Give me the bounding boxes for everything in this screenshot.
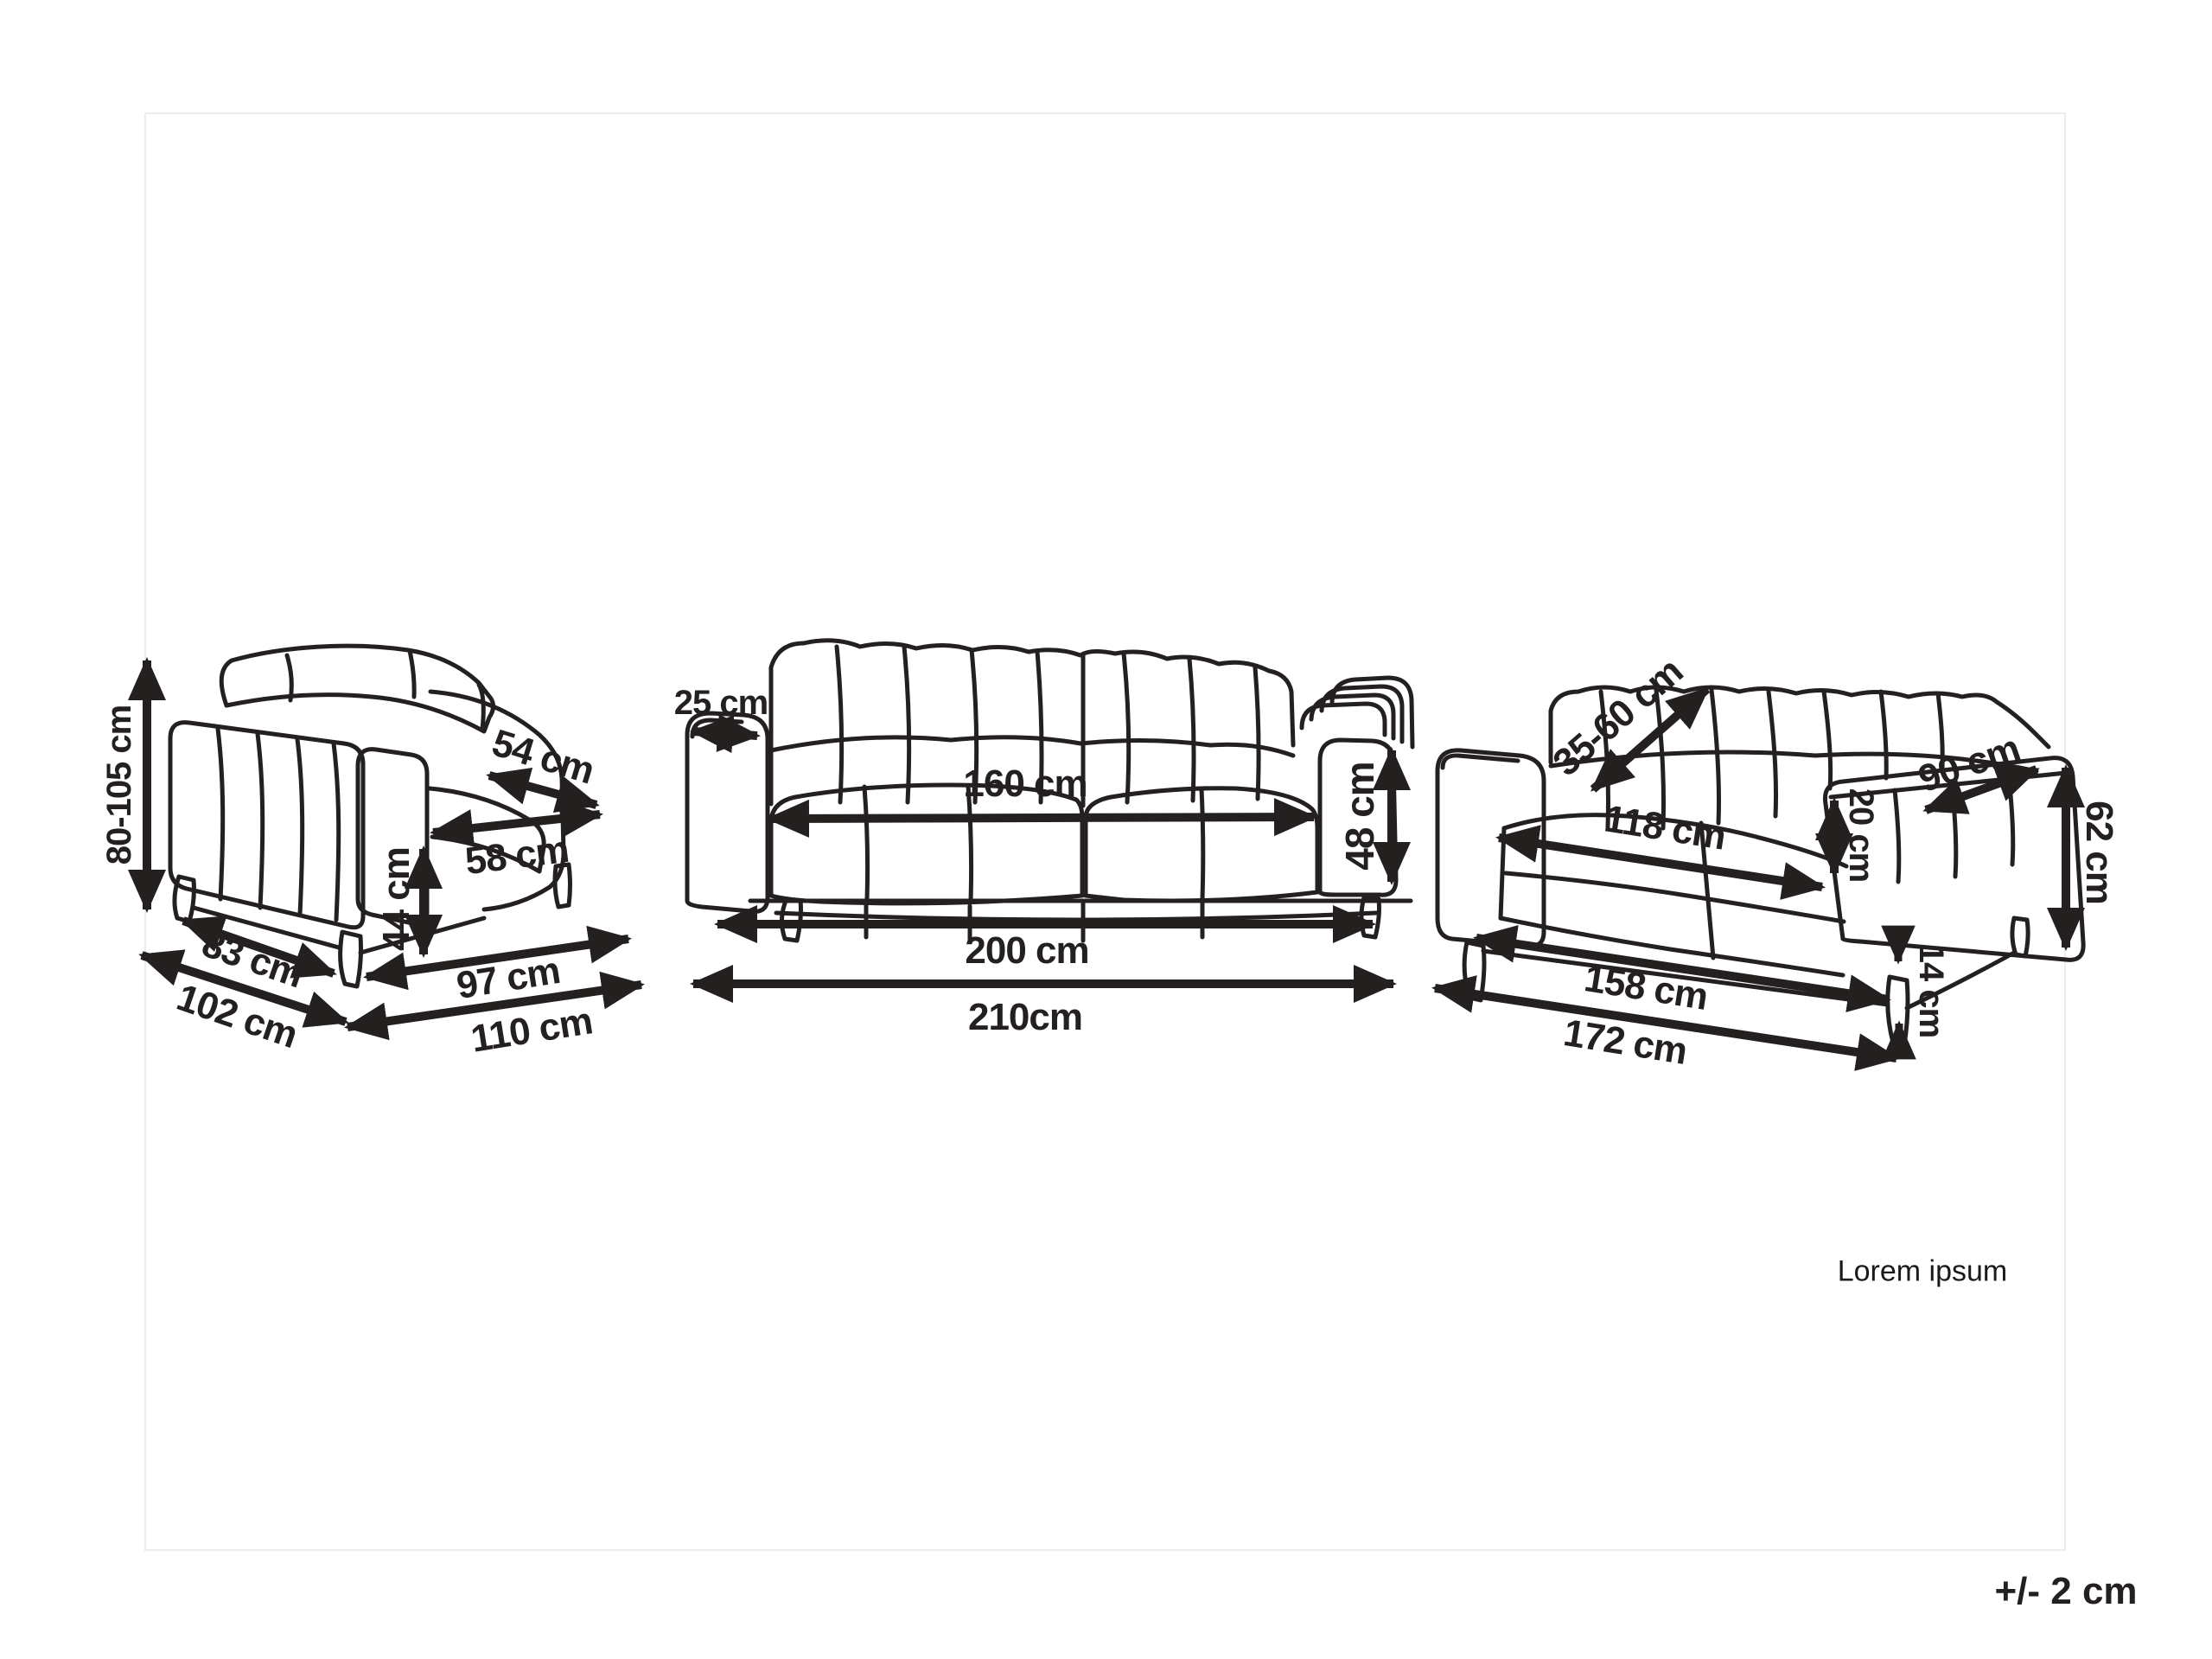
dim-label-armchair-80-105-cm: 80-105 cm — [102, 705, 137, 865]
dim-label-sofa3-210-cm: 210cm — [968, 999, 1082, 1037]
dim-label-sofa2-14-cm: 14 cm — [1914, 944, 1948, 1037]
dim-label-sofa3-25-cm: 25 cm — [674, 686, 768, 720]
watermark-text: Lorem ipsum — [1838, 1255, 2008, 1289]
dim-label-sofa3-48-cm: 48 cm — [1340, 762, 1380, 870]
tolerance-note: +/- 2 cm — [1994, 1570, 2137, 1613]
dimension-arrows — [142, 660, 2066, 1058]
dim-label-armchair-44-cm: 44 cm — [378, 847, 416, 951]
dim-label-sofa3-160-cm: 160 cm — [963, 765, 1087, 803]
dim-label-sofa3-200-cm: 200 cm — [965, 932, 1088, 970]
dim-label-sofa2-62-cm: 62 cm — [2080, 801, 2118, 904]
dim-label-sofa2-20-cm: 20 cm — [1844, 788, 1878, 882]
dimension-diagram-page: 80-105 cm 54 cm 58 cm 44 cm 83 cm 102 cm… — [0, 0, 2212, 1659]
furniture-line-art — [0, 0, 2212, 1659]
